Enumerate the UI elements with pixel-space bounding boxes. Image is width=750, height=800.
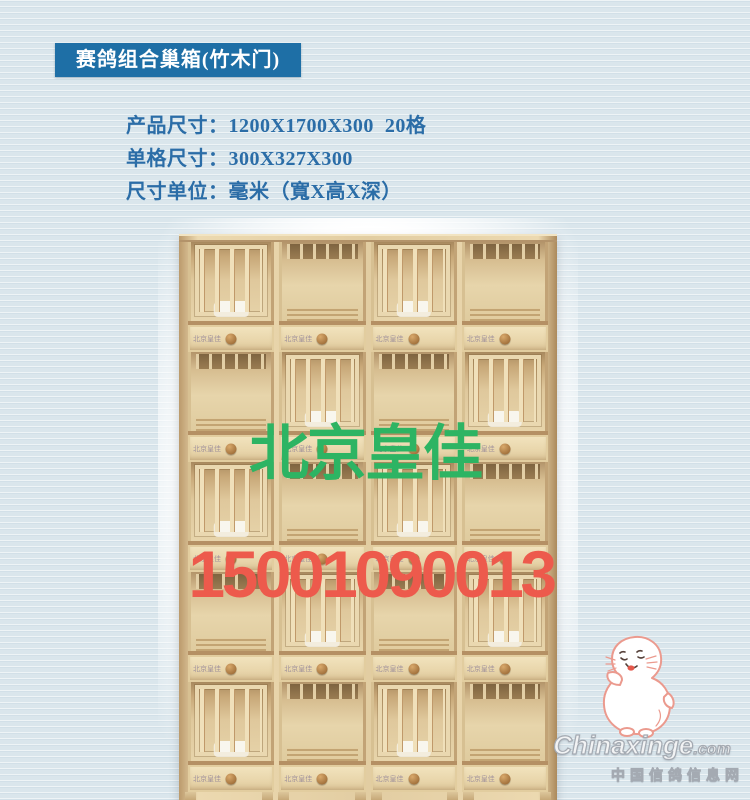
nest-compartment-open <box>462 242 548 321</box>
open-door-ceiling-slats <box>470 684 540 699</box>
nest-drawer: 北京皇佳 <box>279 541 365 572</box>
drawer-knob <box>408 773 419 784</box>
cabinet-leg-module <box>463 792 551 800</box>
nest-compartment-open <box>279 682 365 761</box>
cabinet-leg <box>540 792 551 800</box>
nest-compartment-closed <box>371 462 457 541</box>
nest-drawer: 北京皇佳 <box>371 321 457 352</box>
drawer-stamp: 北京皇佳 <box>193 334 221 344</box>
drawer-knob <box>499 553 510 564</box>
door-bars <box>383 689 445 752</box>
drawer-knob <box>226 553 237 564</box>
spec-line-cell-size: 单格尺寸：300X327X300 <box>126 143 426 176</box>
open-door-ceiling-slats <box>470 244 540 259</box>
nest-drawer: 北京皇佳 <box>462 541 548 572</box>
door-bars <box>200 249 262 312</box>
nest-compartment-closed <box>371 242 457 321</box>
drawer-knob <box>499 333 510 344</box>
floor-slats <box>470 528 540 541</box>
nest-compartment-closed <box>188 462 274 541</box>
drawer-stamp: 北京皇佳 <box>467 664 495 674</box>
cabinet-leg-module <box>371 792 459 800</box>
cabinet-leg <box>447 792 458 800</box>
nest-drawer: 北京皇佳 <box>279 761 365 792</box>
drawer-knob <box>226 333 237 344</box>
drawer-stamp: 北京皇佳 <box>467 334 495 344</box>
drawer-knob <box>499 663 510 674</box>
drawer-knob <box>317 333 328 344</box>
door-bars <box>383 469 445 532</box>
drawer-stamp: 北京皇佳 <box>467 774 495 784</box>
nest-compartment-closed <box>279 352 365 431</box>
nest-compartment-open <box>279 462 365 541</box>
drawer-stamp: 北京皇佳 <box>467 444 495 454</box>
drawer-knob <box>317 553 328 564</box>
nest-compartment-open <box>279 242 365 321</box>
cabinet-grid: 北京皇佳北京皇佳北京皇佳北京皇佳北京皇佳北京皇佳北京皇佳北京皇佳北京皇佳北京皇佳… <box>179 240 557 792</box>
nest-box-cabinet: 北京皇佳北京皇佳北京皇佳北京皇佳北京皇佳北京皇佳北京皇佳北京皇佳北京皇佳北京皇佳… <box>179 234 557 800</box>
open-door-ceiling-slats <box>287 464 357 479</box>
nest-compartment-closed <box>188 242 274 321</box>
floor-slats <box>287 748 357 761</box>
nest-drawer: 北京皇佳 <box>462 431 548 462</box>
floor-slats <box>379 638 449 651</box>
drawer-stamp: 北京皇佳 <box>284 774 312 784</box>
drawer-stamp: 北京皇佳 <box>193 554 221 564</box>
drawer-knob <box>226 773 237 784</box>
mascot-tongue <box>628 665 635 670</box>
drawer-stamp: 北京皇佳 <box>284 554 312 564</box>
nest-drawer: 北京皇佳 <box>462 651 548 682</box>
spec-line-unit: 尺寸单位：毫米（寬X高X深） <box>126 176 426 209</box>
drawer-knob <box>408 333 419 344</box>
drawer-stamp: 北京皇佳 <box>376 334 404 344</box>
page: 赛鸽组合巢箱(竹木门) 产品尺寸：1200X1700X300 20格 单格尺寸：… <box>0 0 750 800</box>
cabinet-leg <box>463 792 474 800</box>
cabinet-leg <box>371 792 382 800</box>
drawer-knob <box>499 443 510 454</box>
nest-compartment-open <box>188 572 274 651</box>
open-door-ceiling-slats <box>470 464 540 479</box>
door-bars <box>291 359 353 422</box>
product-title-text: 赛鸽组合巢箱(竹木门) <box>76 49 280 71</box>
drawer-stamp: 北京皇佳 <box>284 444 312 454</box>
site-name-english: Chinaxinge.com <box>536 732 748 763</box>
open-door-ceiling-slats <box>196 574 266 589</box>
nest-compartment-closed <box>279 572 365 651</box>
cabinet-leg-module <box>185 792 273 800</box>
drawer-stamp: 北京皇佳 <box>376 444 404 454</box>
floor-slats <box>470 308 540 321</box>
cabinet-base <box>179 792 557 800</box>
nest-compartment-closed <box>462 572 548 651</box>
drawer-stamp: 北京皇佳 <box>376 664 404 674</box>
cabinet-leg <box>262 792 273 800</box>
drawer-stamp: 北京皇佳 <box>467 554 495 564</box>
floor-slats <box>196 418 266 431</box>
spec-list: 产品尺寸：1200X1700X300 20格 单格尺寸：300X327X300 … <box>126 110 426 209</box>
nest-compartment-open <box>371 572 457 651</box>
open-door-ceiling-slats <box>287 244 357 259</box>
floor-slats <box>287 528 357 541</box>
drawer-stamp: 北京皇佳 <box>284 334 312 344</box>
drawer-knob <box>226 443 237 454</box>
drawer-knob <box>317 663 328 674</box>
nest-drawer: 北京皇佳 <box>371 431 457 462</box>
nest-compartment-closed <box>371 682 457 761</box>
door-bars <box>474 579 536 642</box>
drawer-knob <box>408 663 419 674</box>
product-title-badge: 赛鸽组合巢箱(竹木门) <box>55 43 301 77</box>
cabinet-leg <box>185 792 196 800</box>
open-door-ceiling-slats <box>287 684 357 699</box>
drawer-knob <box>499 773 510 784</box>
cabinet-leg <box>355 792 366 800</box>
nest-drawer: 北京皇佳 <box>371 761 457 792</box>
drawer-knob <box>226 663 237 674</box>
site-tld: .com <box>693 741 730 758</box>
floor-slats <box>470 748 540 761</box>
open-door-ceiling-slats <box>379 574 449 589</box>
nest-drawer: 北京皇佳 <box>462 321 548 352</box>
nest-drawer: 北京皇佳 <box>279 431 365 462</box>
nest-drawer: 北京皇佳 <box>188 321 274 352</box>
cabinet-leg <box>278 792 289 800</box>
drawer-knob <box>317 773 328 784</box>
door-bars <box>474 359 536 422</box>
cabinet-leg-module <box>278 792 366 800</box>
drawer-knob <box>317 443 328 454</box>
floor-slats <box>379 418 449 431</box>
nest-drawer: 北京皇佳 <box>279 321 365 352</box>
drawer-stamp: 北京皇佳 <box>193 664 221 674</box>
door-bars <box>200 689 262 752</box>
product-photo: 北京皇佳北京皇佳北京皇佳北京皇佳北京皇佳北京皇佳北京皇佳北京皇佳北京皇佳北京皇佳… <box>158 218 578 794</box>
drawer-stamp: 北京皇佳 <box>193 444 221 454</box>
open-door-ceiling-slats <box>379 354 449 369</box>
door-bars <box>291 579 353 642</box>
nest-drawer: 北京皇佳 <box>371 651 457 682</box>
nest-drawer: 北京皇佳 <box>188 431 274 462</box>
site-name-chinese: 中国信鸽信息网 <box>536 767 748 783</box>
nest-drawer: 北京皇佳 <box>279 651 365 682</box>
drawer-stamp: 北京皇佳 <box>376 554 404 564</box>
drawer-stamp: 北京皇佳 <box>284 664 312 674</box>
nest-drawer: 北京皇佳 <box>188 761 274 792</box>
drawer-stamp: 北京皇佳 <box>193 774 221 784</box>
open-door-ceiling-slats <box>196 354 266 369</box>
nest-compartment-closed <box>188 682 274 761</box>
seal-mascot-illustration <box>594 633 682 739</box>
drawer-stamp: 北京皇佳 <box>376 774 404 784</box>
nest-compartment-open <box>188 352 274 431</box>
nest-compartment-open <box>462 462 548 541</box>
nest-compartment-open <box>371 352 457 431</box>
spec-line-product-size: 产品尺寸：1200X1700X300 20格 <box>126 110 426 143</box>
nest-drawer: 北京皇佳 <box>371 541 457 572</box>
door-bars <box>200 469 262 532</box>
door-bars <box>383 249 445 312</box>
drawer-knob <box>408 553 419 564</box>
drawer-knob <box>408 443 419 454</box>
floor-slats <box>196 638 266 651</box>
nest-drawer: 北京皇佳 <box>188 651 274 682</box>
nest-drawer: 北京皇佳 <box>188 541 274 572</box>
nest-compartment-closed <box>462 352 548 431</box>
floor-slats <box>287 308 357 321</box>
site-watermark: Chinaxinge.com 中国信鸽信息网 <box>536 732 748 783</box>
